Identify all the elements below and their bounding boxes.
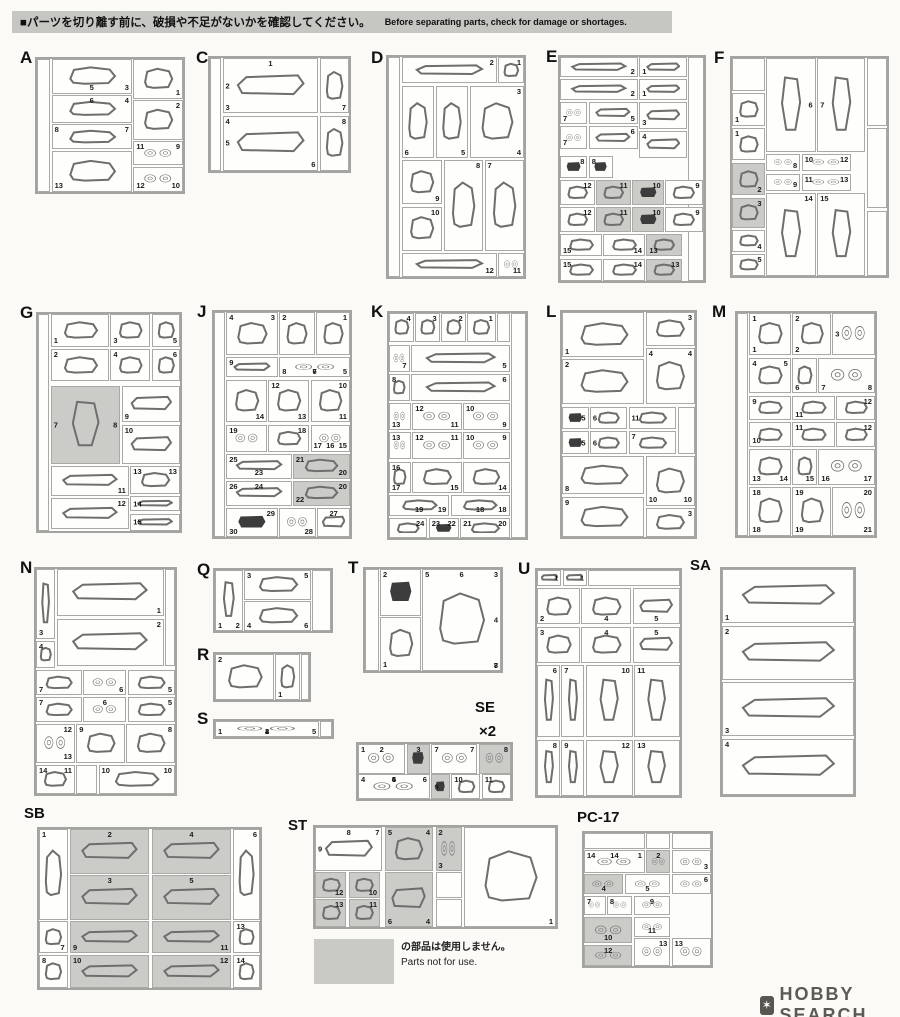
part-number: 6	[90, 97, 94, 105]
sprue-SB-cell: 5	[152, 875, 232, 920]
sprue-J-cell: 2220	[293, 481, 350, 506]
part-number: 10	[621, 667, 629, 675]
sprue-M-cell: 45	[749, 358, 790, 394]
sprue-N-cell	[165, 569, 175, 666]
part-number: 11	[805, 176, 813, 184]
part-drawing	[573, 367, 634, 395]
sprue-M-cell: 10	[749, 422, 790, 447]
part-drawing	[824, 207, 859, 259]
sprue-J-cell: 28	[279, 508, 316, 537]
sprue-D-cell: 7	[485, 160, 524, 250]
sprue-J-cell: 18	[268, 425, 309, 452]
sprue-K-cell: 1211	[412, 432, 461, 459]
part-number: 2	[631, 68, 635, 76]
sprue-K-cell: 1919	[389, 495, 449, 515]
part-drawing	[43, 961, 63, 981]
part-drawing	[476, 844, 544, 907]
sprue-frame-M: 1122345678911121011121314151617181819192…	[735, 311, 877, 538]
part-number: 9	[502, 434, 506, 442]
sprue-F-cell: 9	[766, 174, 800, 191]
part-number: 18	[298, 427, 306, 435]
part-number: 6	[553, 667, 557, 675]
part-number: 5	[388, 829, 392, 837]
part-number: 10	[652, 182, 660, 190]
part-number: 7	[563, 115, 567, 123]
part-number: 2	[54, 351, 58, 359]
part-drawing	[42, 675, 75, 690]
part-number: 5	[631, 115, 635, 123]
sprue-A-cell: 1	[133, 59, 183, 99]
sprue-G-cell: 5	[152, 314, 180, 347]
part-number: 10	[454, 776, 462, 784]
part-drawing	[565, 749, 581, 784]
part-number: 2	[439, 829, 443, 837]
note-en: Parts not for use.	[401, 956, 511, 971]
sprue-A-cell: 53	[52, 59, 132, 94]
part-drawing	[541, 677, 557, 722]
part-number: 8	[42, 957, 46, 965]
sprue-PC-17-cell: 9	[634, 896, 671, 916]
part-number: 8	[504, 746, 508, 754]
sprue-N-cell: 1411	[36, 765, 75, 794]
sprue-J-cell: 2120	[293, 454, 350, 479]
part-number: 12	[118, 500, 126, 508]
part-drawing	[595, 436, 622, 449]
header-warning-jp: ■パーツを切り離す前に、破損や不足がないかを確認してください。	[20, 14, 371, 30]
part-number: 10	[102, 767, 110, 775]
sprue-U-cell: 2	[537, 588, 580, 624]
part-number: 13	[64, 753, 72, 761]
part-number: 1	[638, 852, 642, 860]
part-number: 2	[656, 852, 660, 860]
sprue-M-cell: 1919	[792, 487, 831, 536]
sprue-U-cell: 4	[581, 627, 631, 663]
sprue-M-cell: 15	[792, 449, 817, 485]
part-number: 12	[621, 742, 629, 750]
part-number: 4	[113, 351, 117, 359]
part-drawing	[652, 465, 688, 495]
part-number: 11	[620, 182, 628, 190]
sprue-J-cell: 9	[226, 357, 278, 377]
part-number: 6	[459, 571, 463, 579]
part-drawing	[414, 257, 485, 271]
part-drawing	[826, 364, 867, 386]
part-number: 2	[218, 656, 222, 664]
part-number: 22	[448, 520, 456, 528]
sprue-U-cell: 1	[537, 570, 561, 586]
sprue-SE-cell: 11	[482, 774, 511, 799]
part-drawing	[635, 411, 670, 424]
part-drawing	[83, 731, 118, 754]
part-number: 1	[735, 130, 739, 138]
part-drawing	[739, 578, 838, 611]
part-number: 12	[864, 424, 872, 432]
part-number: 28	[305, 528, 313, 536]
part-drawing	[798, 495, 826, 525]
sprue-F-cell	[867, 128, 887, 209]
sprue-label-F: F	[714, 49, 724, 66]
sprue-label-G: G	[20, 304, 33, 321]
part-number: 6	[704, 876, 708, 884]
part-number: 19	[795, 526, 803, 534]
part-number: 1	[383, 661, 387, 669]
part-number: 12	[415, 434, 423, 442]
sprue-R-cell: 1	[275, 654, 299, 700]
sprue-frame-Q: 123546	[213, 568, 333, 633]
part-number: 2	[157, 621, 161, 629]
sprue-SE-cell: 3	[407, 744, 430, 774]
part-number: 9	[229, 359, 233, 367]
sprue-label-R: R	[197, 646, 209, 663]
part-drawing	[595, 106, 631, 119]
sprue-U-cell: 4	[581, 588, 631, 624]
part-number: 6	[119, 686, 123, 694]
sprue-U-cell: 3	[537, 627, 580, 663]
sprue-D-cell: 8	[444, 160, 483, 250]
sprue-F-cell	[867, 58, 887, 126]
part-number: 4	[39, 643, 43, 651]
part-drawing	[386, 626, 415, 659]
sprue-E-cell: 12	[560, 180, 595, 205]
part-number: 3	[835, 330, 839, 338]
part-drawing	[391, 835, 426, 862]
part-number: 13	[671, 261, 679, 269]
sprue-G-cell	[38, 314, 49, 531]
part-number: 7	[61, 944, 65, 952]
sprue-A-cell: 87	[52, 124, 132, 149]
sprue-label-SB: SB	[24, 806, 45, 821]
part-drawing	[223, 662, 266, 690]
part-number: 10	[752, 437, 760, 445]
part-number: 27	[330, 510, 338, 518]
part-number: 1	[176, 89, 180, 97]
sprue-PC-17-cell: 14141	[584, 850, 645, 873]
part-number: 8	[868, 384, 872, 392]
sprue-C-cell	[210, 58, 221, 171]
part-drawing	[324, 68, 345, 102]
sprue-E-cell: 8	[589, 156, 613, 178]
part-drawing	[80, 837, 139, 864]
part-number: 14	[256, 413, 264, 421]
sprue-D-cell: 12	[402, 253, 497, 277]
part-number: 5	[304, 572, 308, 580]
sprue-G-cell: 10	[122, 425, 180, 464]
part-number: 2	[540, 615, 544, 623]
sprue-M-cell: 22	[792, 313, 831, 355]
part-number: 2	[226, 82, 230, 90]
sprue-label-C: C	[196, 49, 208, 66]
part-number: 6	[304, 622, 308, 630]
sprue-M-cell: 12	[836, 422, 875, 447]
part-number: 4	[725, 741, 729, 749]
sprue-Q-cell: 46	[244, 601, 311, 632]
part-number: 3	[688, 314, 692, 322]
part-number: 14	[779, 475, 787, 483]
sprue-F-cell: 6	[766, 58, 816, 152]
part-number: 1	[752, 315, 756, 323]
part-number: 4	[642, 133, 646, 141]
sprue-label-SE: SE	[475, 700, 495, 715]
part-number: 11	[64, 767, 72, 775]
sprue-K-cell: 13	[389, 432, 411, 459]
part-number: 14	[587, 852, 595, 860]
part-number: 9	[435, 195, 439, 203]
part-drawing	[279, 662, 296, 690]
part-number: 14	[39, 767, 47, 775]
sprue-Q-cell	[312, 570, 331, 631]
part-drawing	[798, 320, 826, 346]
part-number: 7	[39, 686, 43, 694]
part-drawing	[274, 387, 303, 413]
sprue-J-cell: 1213	[268, 380, 309, 423]
sprue-U-cell: 9	[561, 740, 584, 797]
part-number: 15	[133, 519, 141, 527]
sprue-frame-N: 341276576512139814111010	[34, 567, 177, 796]
part-number: 12	[335, 889, 343, 897]
part-number: 6	[795, 384, 799, 392]
part-number: 12	[583, 209, 591, 217]
part-drawing	[573, 320, 634, 348]
sprue-U-cell	[588, 570, 680, 586]
part-number: 7	[470, 746, 474, 754]
part-number: 25	[229, 456, 237, 464]
part-number: 11	[118, 487, 126, 495]
sprue-D-cell: 6	[402, 86, 435, 159]
part-number: 6	[502, 376, 506, 384]
part-number: 20	[339, 469, 347, 477]
part-number: 8	[476, 162, 480, 170]
sprue-M-cell: 1314	[749, 449, 790, 485]
sprue-R-cell: 2	[215, 654, 274, 700]
sprue-E-cell: 7	[560, 102, 587, 124]
sprue-K-cell: 109	[463, 403, 510, 430]
sprue-ST-cell	[436, 872, 463, 898]
sprue-J-cell: 2523	[226, 454, 291, 479]
sprue-J-cell: 1011	[311, 380, 350, 423]
part-number: 2	[282, 314, 286, 322]
part-number: 3	[433, 315, 437, 323]
sprue-L-cell: 44	[646, 348, 695, 404]
sprue-F-cell: 1012	[802, 154, 852, 171]
sprue-N-cell: 5	[128, 670, 175, 695]
part-drawing	[570, 83, 628, 95]
sprue-K-cell	[497, 313, 509, 342]
part-number: 3	[439, 862, 443, 870]
part-number: 23	[255, 469, 263, 477]
sprue-SB-cell: 1	[39, 829, 68, 920]
part-number: 13	[298, 413, 306, 421]
sprue-A-cell: 13	[52, 151, 132, 192]
sprue-E-cell: 15	[560, 259, 602, 281]
sprue-frame-L: 1324456115678101093	[560, 310, 697, 539]
part-number: 8	[55, 126, 59, 134]
part-drawing	[137, 517, 173, 527]
part-drawing	[162, 927, 221, 946]
part-number: 2	[725, 628, 729, 636]
hobby-search-icon: ✶	[760, 996, 774, 1015]
part-number: 14	[634, 261, 642, 269]
part-drawing	[652, 318, 688, 338]
part-number: 10	[164, 767, 172, 775]
part-drawing	[640, 677, 673, 722]
sprue-F-cell: 4	[732, 230, 765, 252]
part-number: 9	[695, 209, 699, 217]
part-number: 20	[339, 483, 347, 491]
part-drawing	[62, 158, 122, 183]
sprue-T-cell: 563487	[422, 569, 501, 671]
sprue-G-cell: 12	[51, 498, 129, 528]
sprue-E-cell: 3	[639, 102, 687, 129]
part-drawing	[640, 749, 673, 784]
sprue-ST-cell: 10	[349, 872, 380, 898]
sprue-K-cell	[511, 313, 526, 538]
part-number: 4	[426, 829, 430, 837]
part-drawing	[755, 495, 785, 525]
part-drawing	[737, 203, 760, 221]
part-drawing	[316, 387, 344, 413]
part-number: 15	[450, 484, 458, 492]
part-drawing	[592, 749, 626, 784]
part-drawing	[284, 320, 309, 346]
part-number: 6	[809, 101, 813, 109]
part-drawing	[235, 125, 306, 159]
part-drawing	[737, 258, 760, 271]
part-number: 11	[795, 424, 803, 432]
sprue-F-cell: 1	[732, 128, 765, 161]
part-number: 11	[513, 267, 521, 275]
sprue-U-cell: 13	[634, 740, 680, 797]
part-number: 6	[253, 831, 257, 839]
part-number: 5	[90, 84, 94, 92]
part-drawing	[80, 927, 139, 946]
sprue-PC-17-cell: 6	[672, 874, 711, 894]
part-number: 11	[795, 411, 803, 419]
part-drawing	[116, 355, 145, 375]
sprue-A-cell: 64	[52, 95, 132, 123]
part-number: 14	[634, 247, 642, 255]
sprue-PC-17-cell: 4	[584, 874, 623, 894]
part-number: 12	[220, 957, 228, 965]
part-drawing	[670, 212, 697, 226]
part-number: 2	[459, 315, 463, 323]
part-number: 2	[631, 90, 635, 98]
part-number: 3	[540, 629, 544, 637]
sprue-F-cell: 7	[817, 58, 865, 152]
part-number: 1	[565, 348, 569, 356]
part-number: 9	[564, 742, 568, 750]
sprue-N-cell: 1	[57, 569, 164, 616]
part-drawing	[652, 358, 688, 393]
part-drawing	[140, 146, 176, 160]
sprue-PC-17-cell: 7	[584, 896, 606, 916]
sprue-SB-cell: 4	[152, 829, 232, 874]
part-number: 2	[108, 831, 112, 839]
part-number: 9	[125, 413, 129, 421]
sprue-frame-G: 13524678910111213131415	[36, 312, 182, 533]
part-number: 10	[652, 209, 660, 217]
sprue-K-cell: 3	[415, 313, 440, 342]
part-number: 9	[502, 421, 506, 429]
sprue-M-cell: 6	[792, 358, 817, 394]
part-drawing	[419, 437, 455, 453]
sprue-J-cell: 14	[226, 380, 267, 423]
part-number: 30	[229, 528, 237, 536]
part-number: 12	[864, 398, 872, 406]
part-number: 19	[229, 427, 237, 435]
part-number: 12	[485, 267, 493, 275]
part-number: 1	[489, 315, 493, 323]
part-drawing	[162, 837, 221, 864]
part-number: 14	[610, 852, 618, 860]
part-drawing	[162, 883, 221, 910]
part-number: 11	[632, 414, 640, 422]
part-number: 4	[247, 622, 251, 630]
part-number: 9	[565, 499, 569, 507]
sprue-N-cell: 3	[36, 569, 55, 639]
sprue-frame-U: 11245345671011891213	[535, 568, 682, 798]
part-drawing	[237, 844, 256, 901]
part-drawing	[570, 61, 628, 73]
part-number: 4	[752, 360, 756, 368]
part-number: 5	[581, 414, 585, 422]
sprue-E-cell: 10	[632, 180, 664, 205]
part-number: 3	[39, 629, 43, 637]
part-number: 1	[218, 728, 222, 736]
part-number: 11	[648, 927, 656, 935]
part-number: 13	[675, 940, 683, 948]
part-drawing	[324, 835, 374, 862]
sprue-multiplier-SE: ×2	[479, 724, 496, 739]
part-drawing	[469, 408, 503, 424]
part-number: 22	[296, 496, 304, 504]
part-number: 1	[725, 614, 729, 622]
sprue-D-cell	[388, 57, 400, 277]
part-number: 3	[517, 88, 521, 96]
part-number: 12	[415, 405, 423, 413]
part-number: 7	[402, 362, 406, 370]
part-number: 11	[620, 209, 628, 217]
part-number: 6	[388, 918, 392, 926]
part-number: 19	[795, 489, 803, 497]
hobby-search-logo-text: HOBBY SEARCH	[780, 984, 900, 1017]
sprue-E-cell: 4	[639, 131, 687, 158]
part-number: 5	[168, 686, 172, 694]
sprue-F-cell: 1113	[802, 174, 852, 191]
part-number: 1	[580, 574, 584, 582]
part-drawing	[543, 595, 574, 617]
sprue-label-SA: SA	[690, 558, 711, 573]
part-number: 21	[463, 520, 471, 528]
part-number: 15	[339, 442, 347, 450]
part-number: 7	[563, 139, 567, 147]
sprue-J-cell: 27	[317, 508, 350, 537]
sprue-U-cell: 1	[563, 570, 587, 586]
part-number: 3	[725, 727, 729, 735]
sprue-SB-cell: 7	[39, 921, 68, 953]
sprue-frame-A: 53648713121191210	[35, 57, 185, 194]
sprue-G-cell: 4	[110, 349, 150, 382]
sprue-label-ST: ST	[288, 818, 307, 833]
part-drawing	[739, 635, 838, 668]
part-number: 5	[173, 337, 177, 345]
sprue-M-cell	[737, 313, 748, 536]
part-number: 4	[757, 243, 761, 251]
part-number: 3	[125, 84, 129, 92]
sprue-label-PC-17: PC-17	[577, 810, 620, 825]
part-drawing	[137, 499, 173, 507]
part-drawing	[826, 455, 867, 477]
part-number: 7	[54, 421, 58, 429]
